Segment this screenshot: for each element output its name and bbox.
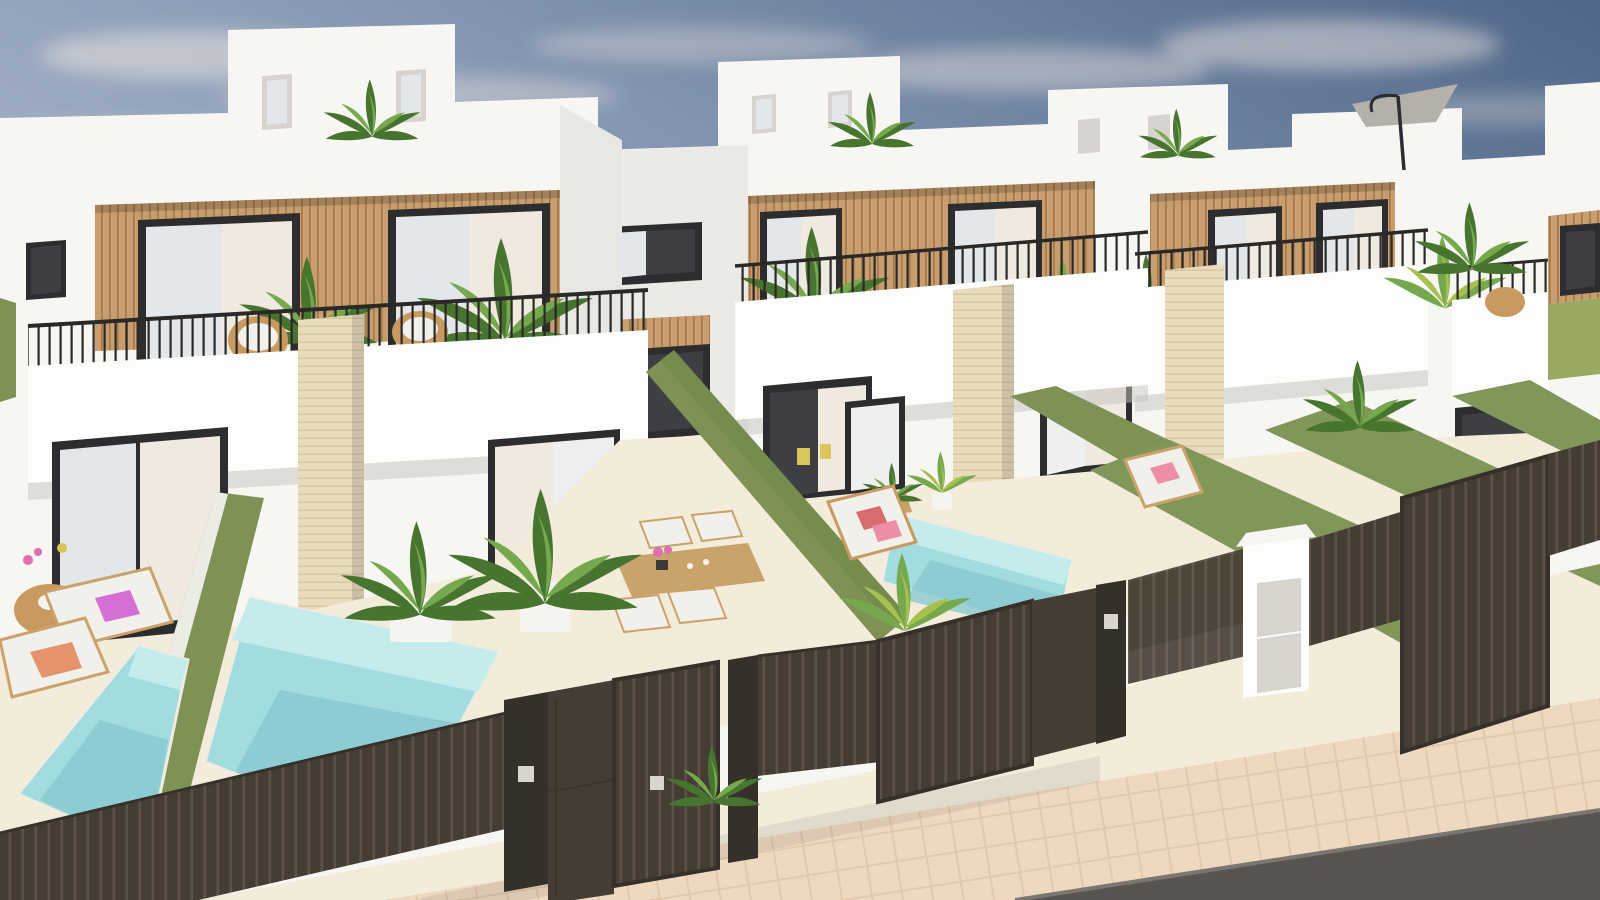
villa4-rattan-chair xyxy=(1485,287,1525,317)
dining-chair xyxy=(640,517,692,548)
cloud xyxy=(850,48,1210,92)
gate-lock-plate xyxy=(1104,614,1118,629)
roof-window-glass xyxy=(401,74,421,118)
gate-pillar xyxy=(504,692,548,892)
gate-pillar xyxy=(728,655,758,863)
table-cup xyxy=(687,563,693,569)
gate-lock-plate xyxy=(518,766,534,782)
dining-chair xyxy=(692,511,742,541)
utility-panel xyxy=(1258,634,1300,692)
vase-flowers xyxy=(664,546,672,554)
flower-yellow xyxy=(57,543,67,553)
gate-lock-plate xyxy=(650,776,664,790)
gate-villa3-large xyxy=(1402,456,1548,752)
gate-villa2-solid xyxy=(1032,588,1096,758)
roof-window-glass xyxy=(832,94,848,124)
fence-corrugated-mid xyxy=(758,641,880,776)
horizon-field xyxy=(1548,298,1600,380)
interior-chair-yellow xyxy=(797,448,810,465)
utility-panel xyxy=(1258,579,1300,636)
table-cup xyxy=(703,559,709,565)
flower-pink xyxy=(23,555,33,565)
villa-render-scene xyxy=(0,0,1600,900)
gate-slatted-leaf xyxy=(614,662,718,886)
vase-flowers xyxy=(653,547,663,557)
plant-pot-white xyxy=(932,492,952,510)
pillar-side-shade xyxy=(352,314,364,642)
villa4-window-glass xyxy=(1566,230,1595,290)
roof-window-glass xyxy=(267,79,287,125)
roof-window-glass xyxy=(756,98,772,130)
gate-end-post xyxy=(1096,580,1126,744)
cloud xyxy=(1160,19,1500,71)
table-vase xyxy=(656,560,668,570)
hedge-sliver-left-edge xyxy=(0,298,16,402)
fence-far-right xyxy=(1548,440,1600,556)
villa1-small-window-glass xyxy=(31,245,61,295)
cloud xyxy=(530,27,870,63)
interior-chair-yellow xyxy=(820,444,831,459)
roof-window-frame xyxy=(1078,118,1100,154)
render-canvas xyxy=(0,0,1600,900)
connector-window-glass xyxy=(646,229,695,275)
flower-pink xyxy=(34,548,42,556)
